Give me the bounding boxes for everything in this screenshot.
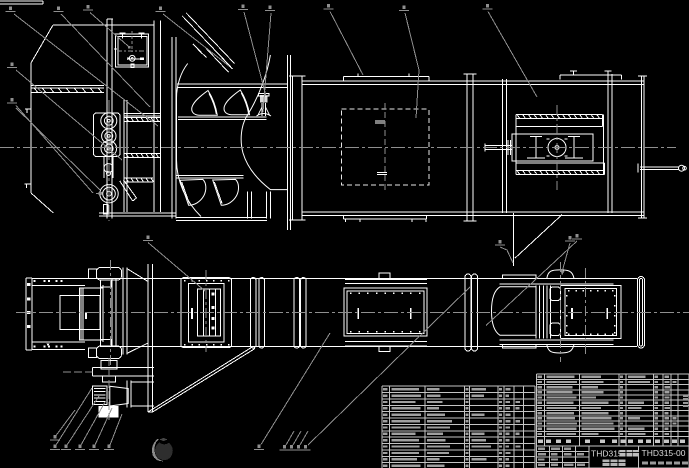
svg-text:THD315: THD315: [591, 449, 623, 459]
svg-text:THD315-00: THD315-00: [642, 448, 686, 458]
